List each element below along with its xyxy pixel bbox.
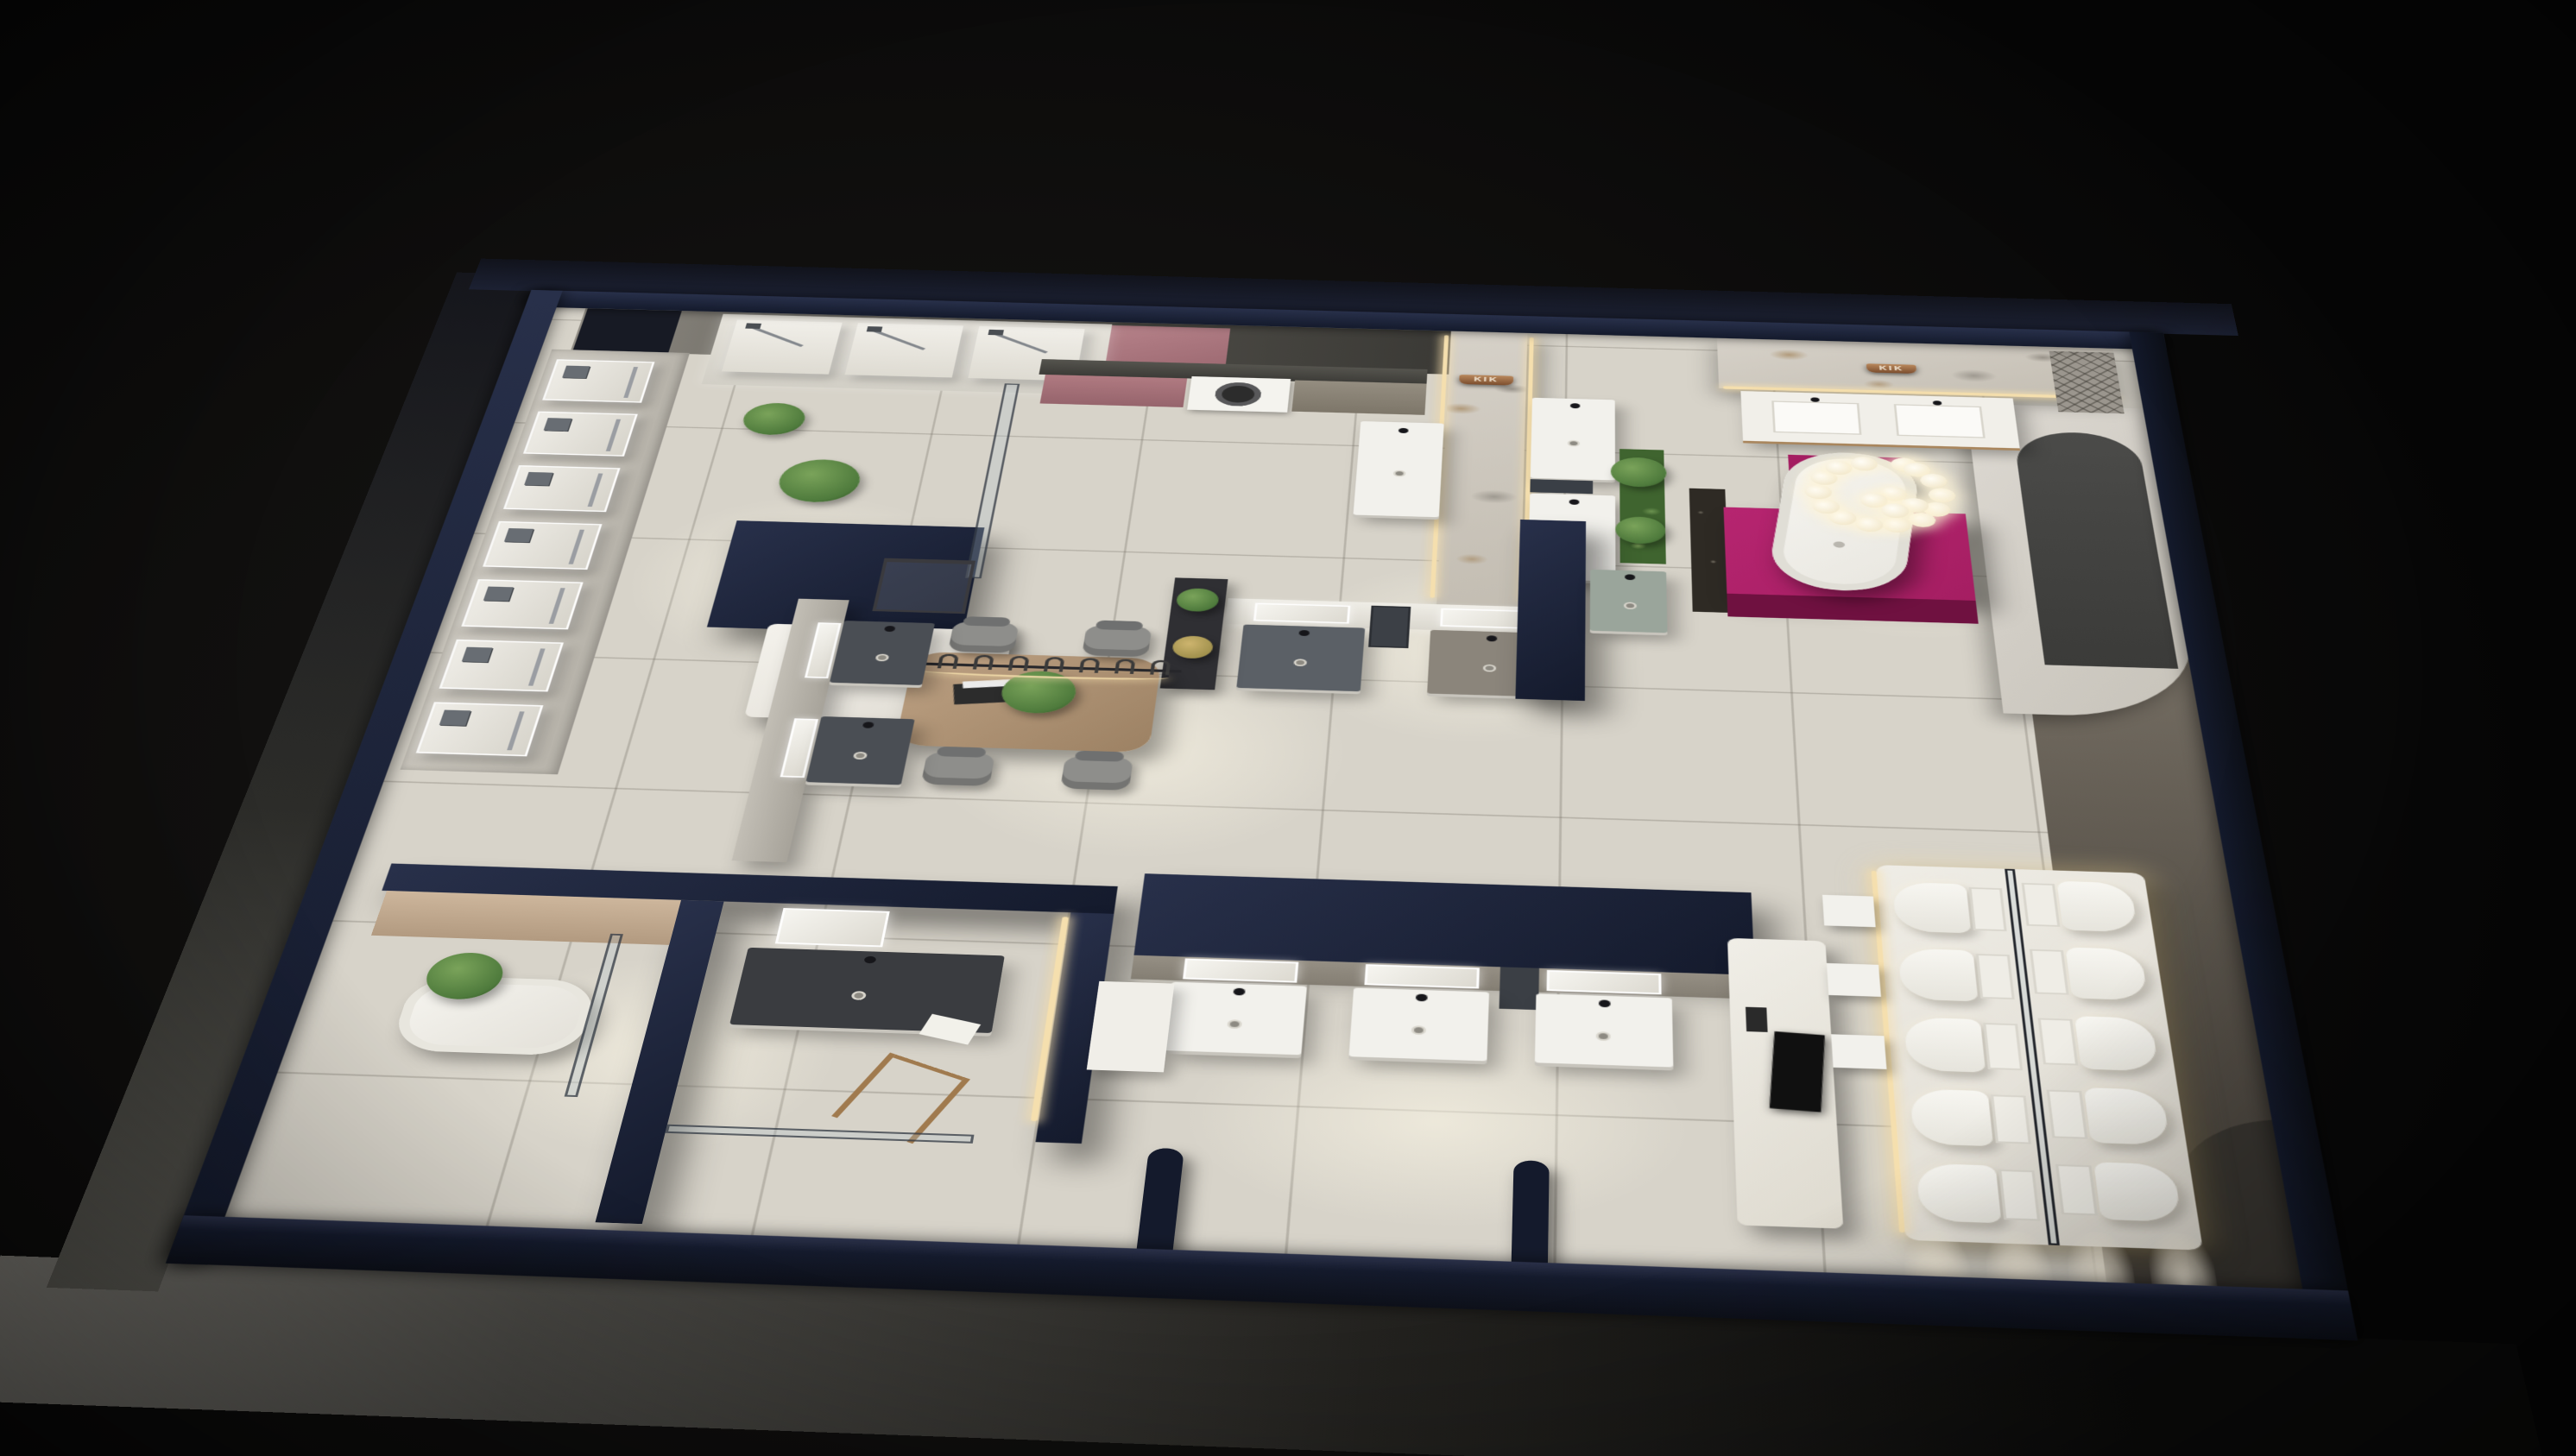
- dining-chair: [921, 752, 995, 786]
- toilet: [2021, 879, 2137, 932]
- toilet: [1904, 1017, 2023, 1074]
- brand-sign-center: KIK: [1459, 375, 1513, 386]
- open-shelf-tower: [1500, 967, 1539, 1010]
- led-mirror: [1547, 970, 1662, 994]
- toilet: [1892, 882, 2007, 935]
- faucet-display-panel: [439, 640, 564, 692]
- vanity-unit-sage: [1590, 570, 1668, 633]
- vanity-unit: [1535, 993, 1673, 1067]
- toilet: [1897, 949, 2015, 1003]
- dining-chair: [1060, 756, 1133, 791]
- faucet-display-panel: [542, 359, 654, 402]
- floorplan: ····· ····· KIK: [166, 290, 2358, 1340]
- toilet: [2055, 1161, 2182, 1222]
- tv-screen: [1770, 1031, 1825, 1112]
- washing-machine: [1187, 376, 1291, 413]
- mirror: [775, 908, 890, 947]
- led-mirror: [1364, 964, 1479, 988]
- taupe-cabinets: [1291, 380, 1426, 414]
- shower-display-column: [845, 323, 964, 377]
- toilet: [2037, 1015, 2159, 1072]
- vanity-unit-dark: [830, 621, 935, 685]
- dining-chair: [948, 621, 1020, 653]
- faucet-display-panel: [523, 412, 638, 457]
- white-pedestal: [1087, 981, 1175, 1073]
- basin: [1771, 400, 1861, 434]
- marble-feature-wall-center: [1436, 331, 1527, 608]
- led-mirror: [1183, 958, 1298, 982]
- toilet: [2029, 946, 2148, 1000]
- metal-shelf-rack: [872, 558, 975, 615]
- vanity-unit: [1531, 398, 1615, 481]
- side-shelf: [1530, 479, 1593, 494]
- wall-hung-unit: [1822, 895, 1876, 927]
- vanity-unit: [1164, 982, 1307, 1056]
- dining-chair: [1082, 625, 1152, 657]
- door-jamb: [1512, 1160, 1550, 1269]
- faucet-display-panel: [503, 465, 621, 512]
- shower-display-column: [722, 319, 843, 374]
- beige-accent-wall: [371, 891, 681, 945]
- navy-partition: [1515, 520, 1586, 701]
- brand-sign-right: KIK: [1866, 363, 1916, 374]
- wall-hung-unit: [1831, 1034, 1886, 1069]
- black-faucet: [1810, 397, 1819, 401]
- black-faucet: [1933, 400, 1942, 405]
- faucet-display-panel: [416, 702, 544, 756]
- mauve-cabinets: [1040, 375, 1188, 407]
- faucet-display-panel: [483, 521, 602, 570]
- back-doorway: [573, 308, 682, 352]
- demo-counter: [1727, 938, 1843, 1229]
- vanity-unit: [1354, 421, 1444, 517]
- double-vanity: [1740, 391, 2019, 448]
- toilet: [2046, 1087, 2170, 1145]
- basin: [1894, 404, 1986, 438]
- toilet: [1910, 1088, 2031, 1147]
- vanity-unit: [1349, 988, 1489, 1062]
- showroom-render: ····· ····· KIK: [0, 0, 2576, 1456]
- toilet: [1916, 1163, 2040, 1225]
- textured-tile-column: [2049, 351, 2125, 413]
- led-mirror: [1253, 603, 1350, 624]
- wall-hung-unit: [1827, 963, 1881, 997]
- tub-drain: [1833, 541, 1845, 548]
- control-panel: [1746, 1007, 1768, 1032]
- faucet-display-panel: [461, 579, 583, 629]
- washer-door: [1214, 382, 1262, 407]
- vanity-unit-dark: [805, 716, 914, 785]
- open-shelf-tower: [1368, 606, 1411, 648]
- vanity-unit-gray: [1236, 625, 1365, 692]
